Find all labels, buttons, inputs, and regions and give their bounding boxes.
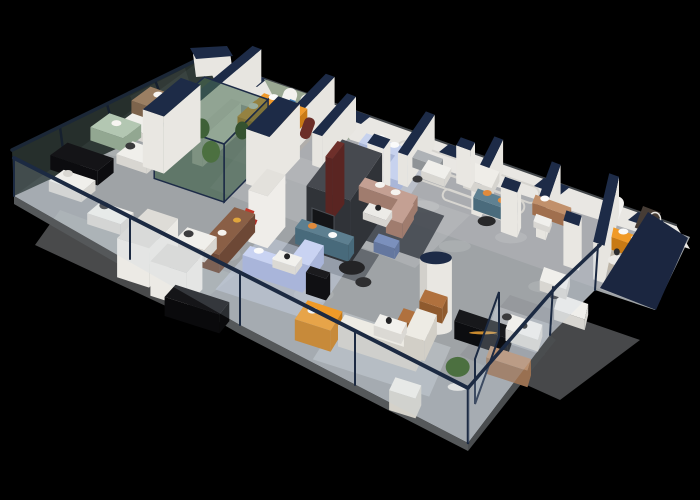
pillar-mid-front [563, 221, 579, 271]
cushion-amber [233, 218, 241, 223]
dining-chair [184, 230, 194, 237]
terrarium-plant [202, 141, 220, 163]
desk-chair [413, 176, 423, 183]
column-cylinder-cap [420, 251, 452, 264]
coffee-table-black-round [478, 216, 496, 226]
pillow [328, 232, 337, 238]
pillow [218, 230, 227, 236]
terrarium-column-left-front [143, 109, 164, 173]
scene-canvas [0, 0, 700, 500]
pillow-orange [483, 190, 492, 196]
pillow [391, 189, 401, 195]
desk-chair [63, 170, 73, 177]
decor-vase-dark [386, 317, 392, 324]
pillow [389, 142, 399, 148]
pillow [111, 120, 121, 126]
desk-chair [125, 142, 135, 149]
ceiling-glow [439, 240, 471, 252]
feature-wall-red-accent-front [326, 156, 333, 219]
coffee-table-black-round [339, 261, 365, 275]
pillow [375, 182, 385, 188]
coffee-table-black-round [355, 277, 371, 287]
pillow [618, 229, 628, 235]
pillar-mid-side [471, 142, 475, 188]
pillow [254, 248, 264, 254]
pillow [540, 195, 549, 201]
partition-wall-5-front [398, 152, 408, 187]
floorplan-render [0, 0, 700, 500]
pillow-orange [308, 223, 317, 229]
pillar-mid-front [456, 145, 470, 188]
decor-vase-dark [284, 253, 290, 259]
partition-wall-4-front [312, 133, 322, 169]
dining-chair [502, 313, 512, 320]
decor-vase-dark [375, 205, 381, 211]
plant-foliage [446, 357, 470, 377]
pillar-mid-front [501, 187, 517, 238]
decor-vase-dark [614, 248, 620, 255]
